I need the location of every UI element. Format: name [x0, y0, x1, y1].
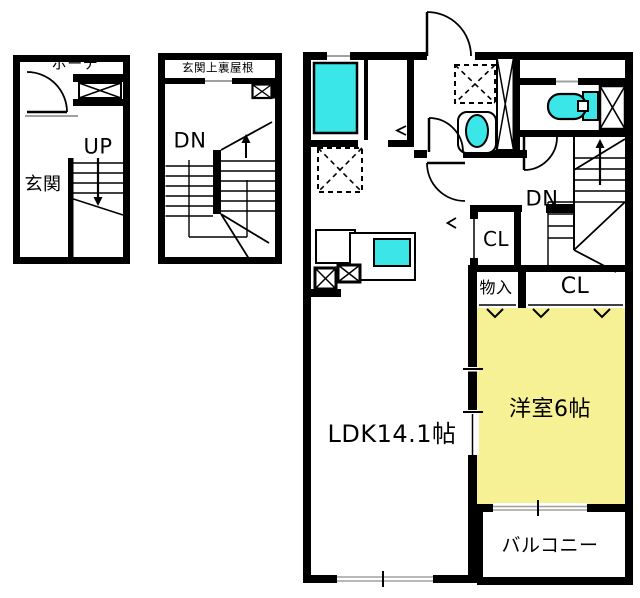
- porch-label: ポーチ: [52, 57, 99, 72]
- stairs-up-label: UP: [83, 137, 112, 158]
- washing-machine-space: [455, 65, 495, 103]
- roof-title-label: 玄関上裏屋根: [182, 62, 254, 74]
- storage-label: 物入: [479, 280, 512, 296]
- shaft-x-box-roof: [253, 84, 279, 99]
- roof-dn-label: DN: [174, 131, 207, 152]
- plan-2f: [303, 12, 633, 587]
- toilet-x-box: [600, 86, 625, 129]
- floor-plan-page: ポーチ 玄関 UP 玄関上裏屋根 DN DN CL 物入 CL LDK14.1帖…: [0, 0, 640, 598]
- balcony-label: バルコニー: [501, 537, 598, 556]
- duct-x-boxes: [311, 265, 360, 297]
- dn-2f-label: DN: [526, 189, 559, 210]
- entrance-label: 玄関: [25, 176, 62, 194]
- plan-1f: [17, 59, 128, 263]
- wall: [68, 158, 74, 262]
- bedroom-closet-label: CL: [561, 276, 590, 298]
- washbasin: [458, 112, 496, 153]
- kitchen-sink: [374, 239, 410, 266]
- shaft-x-box-1f: [73, 74, 127, 106]
- floorplan-drawing: [0, 0, 640, 598]
- plan-roof: [162, 57, 280, 263]
- toilet: [548, 92, 598, 120]
- bath-folding-door-marker: [397, 126, 406, 135]
- bedroom-label: 洋室6帖: [509, 399, 591, 421]
- stairs-2f-arrow: [596, 139, 605, 185]
- roof-window: [205, 77, 232, 85]
- bathtub: [314, 63, 357, 133]
- refrigerator-space: [318, 148, 362, 192]
- toilet-door: [524, 137, 557, 170]
- closet-folding-door-marker: [448, 218, 457, 228]
- stair-divider-wall: [213, 150, 221, 214]
- entry-door: [427, 12, 471, 56]
- hall-closet-label: CL: [483, 229, 509, 249]
- hall-door: [427, 163, 465, 201]
- pipe-space-panel: [497, 58, 514, 150]
- ldk-label: LDK14.1帖: [327, 422, 456, 446]
